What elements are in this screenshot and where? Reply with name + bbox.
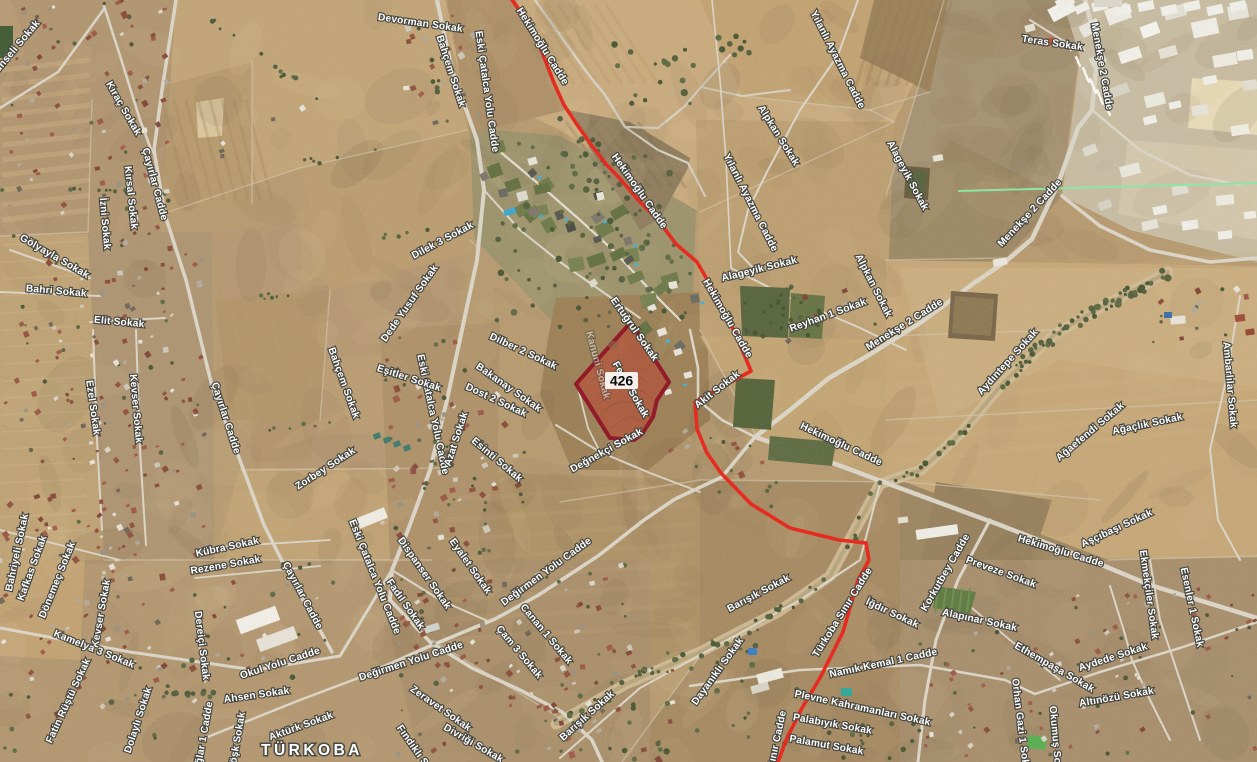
svg-text:TÜRKOBA: TÜRKOBA (261, 742, 363, 759)
svg-text:426: 426 (610, 373, 634, 389)
